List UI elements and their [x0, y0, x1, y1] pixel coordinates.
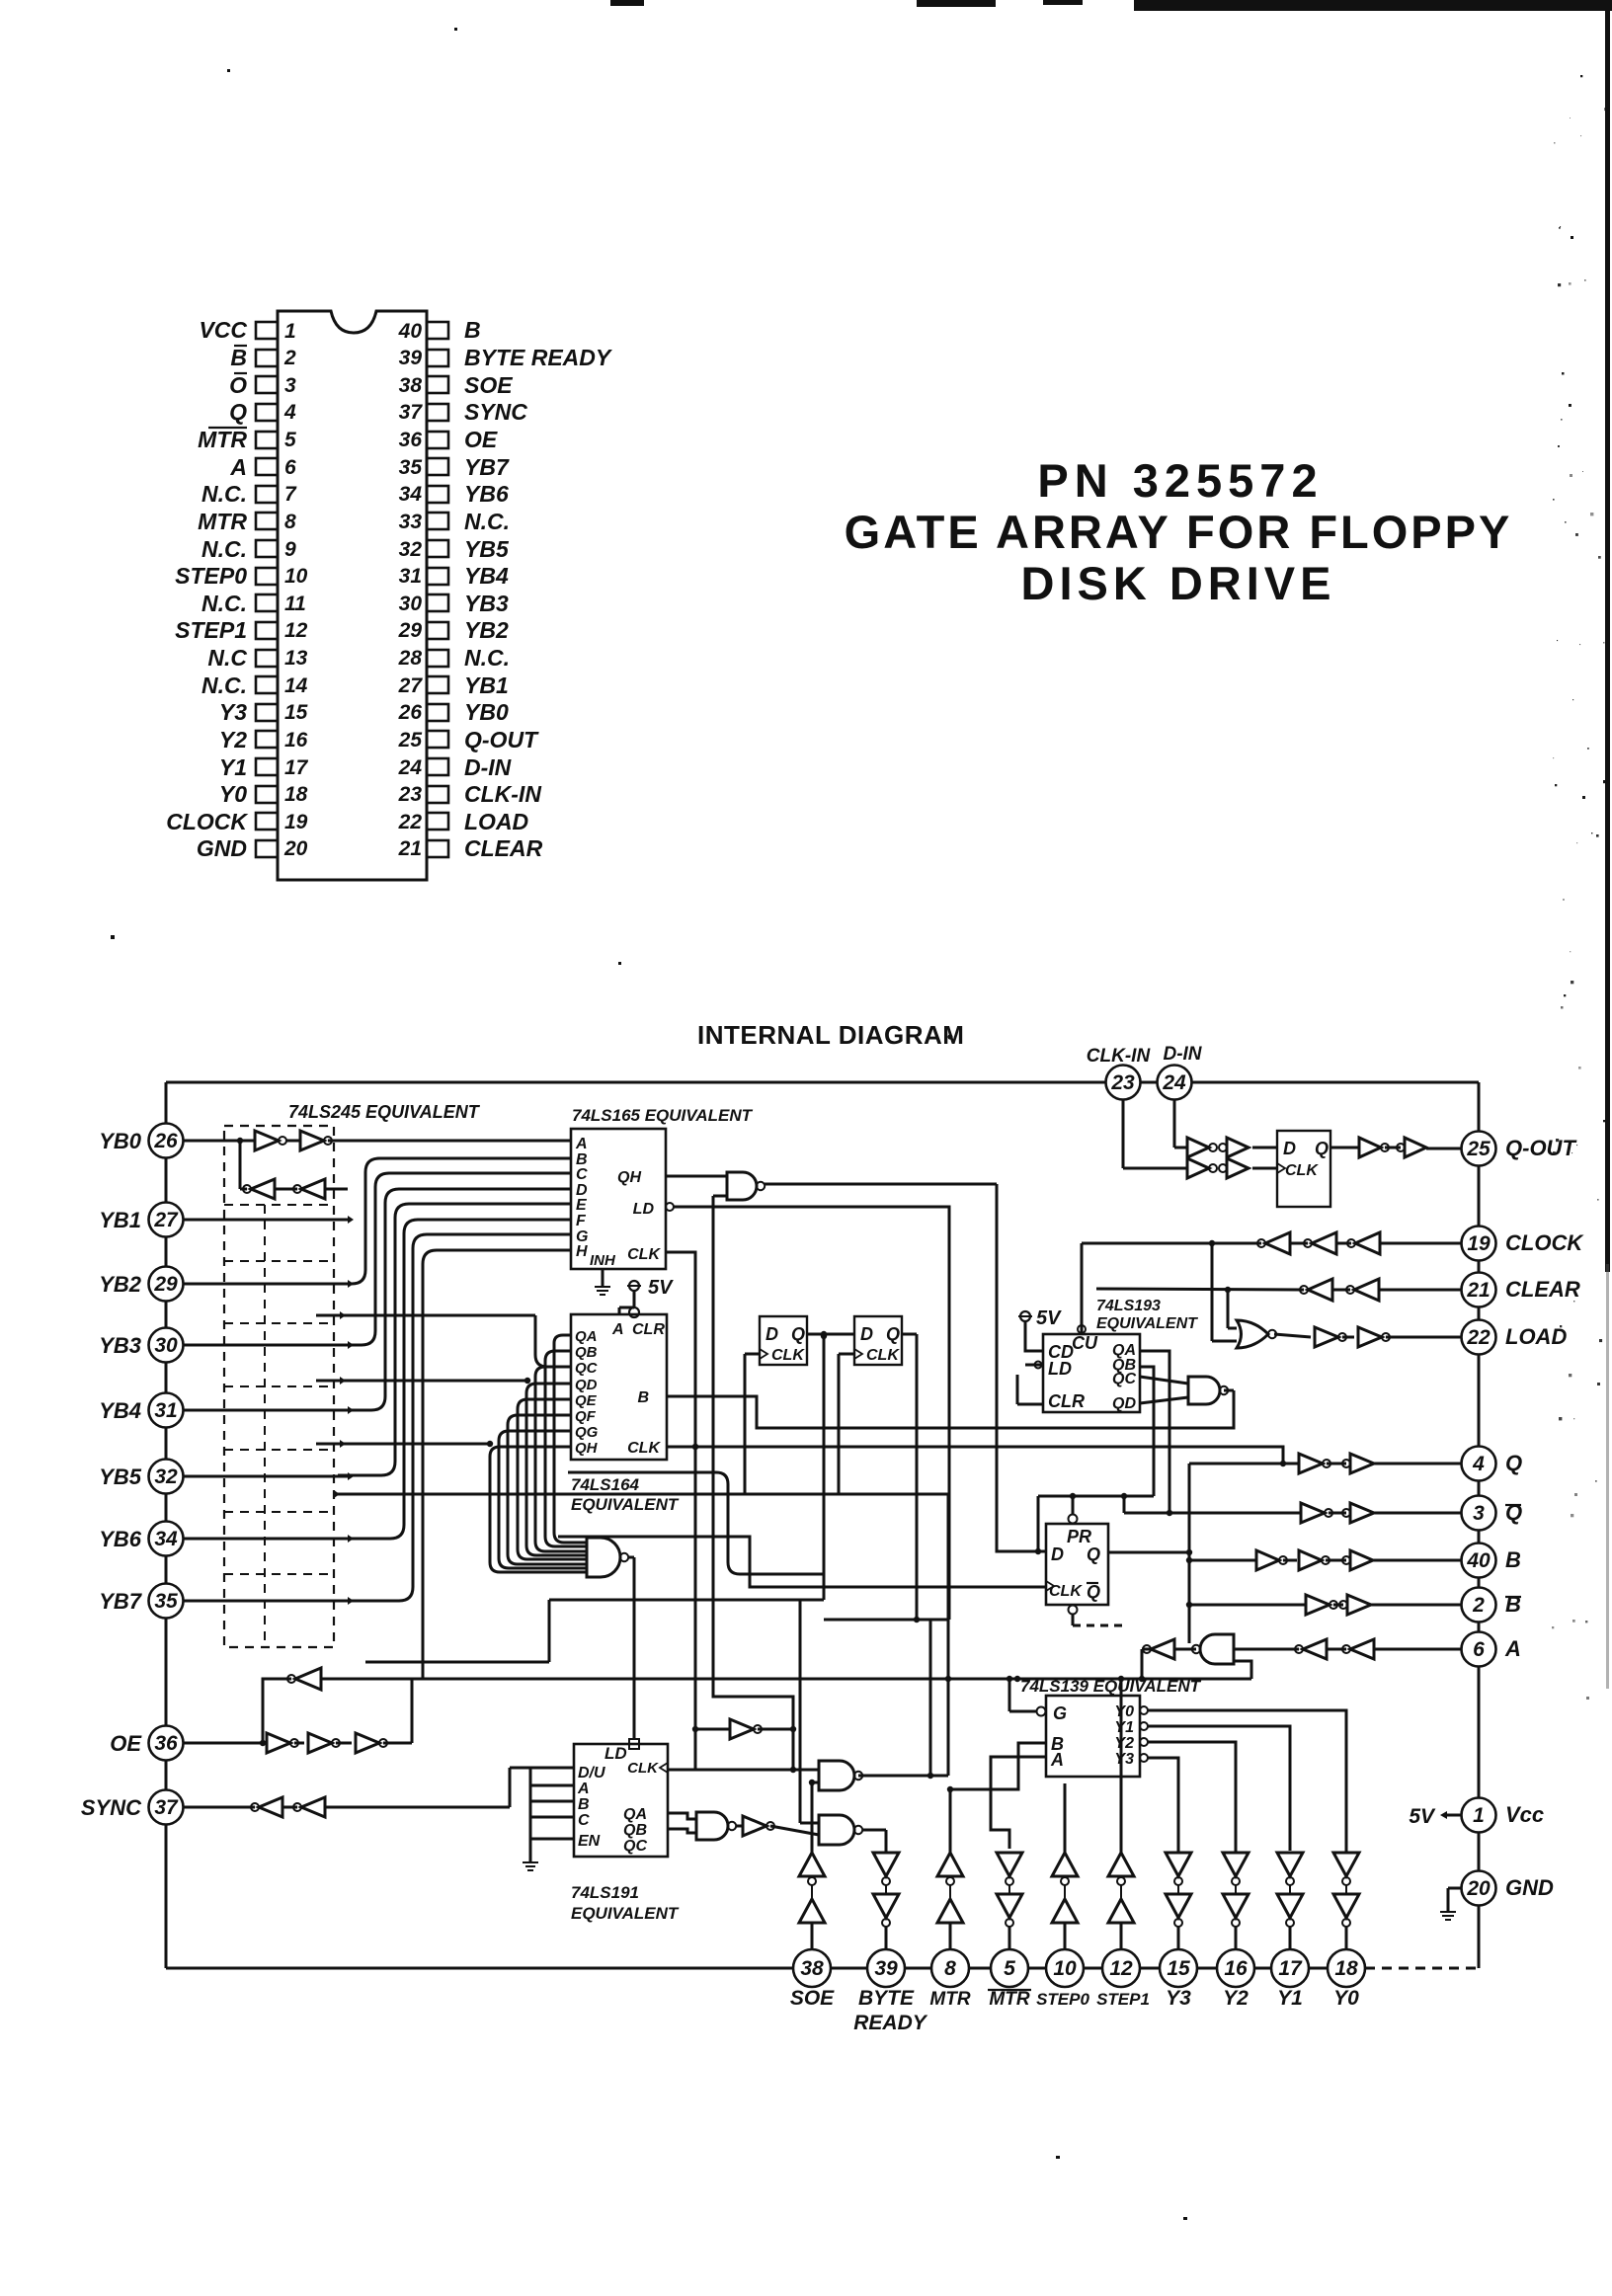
svg-text:N.C.: N.C. [464, 645, 510, 671]
svg-text:Y3: Y3 [1166, 1987, 1191, 2010]
svg-text:39: 39 [874, 1957, 898, 1980]
svg-text:Y1: Y1 [1277, 1987, 1303, 2010]
svg-text:E: E [576, 1197, 588, 1214]
svg-text:20: 20 [1466, 1877, 1491, 1900]
svg-text:CLR: CLR [1048, 1391, 1085, 1411]
svg-text:D/U: D/U [578, 1765, 605, 1781]
svg-text:B: B [1505, 1592, 1521, 1617]
svg-text:Y0: Y0 [219, 781, 247, 807]
svg-text:LD: LD [633, 1201, 655, 1218]
svg-text:QD: QD [1112, 1395, 1136, 1412]
svg-text:Y2: Y2 [1223, 1987, 1249, 2010]
svg-text:A: A [577, 1781, 590, 1797]
svg-text:CLK: CLK [1285, 1162, 1319, 1179]
svg-text:24: 24 [398, 756, 423, 779]
svg-text:N.C.: N.C. [201, 536, 247, 562]
svg-text:D: D [766, 1324, 778, 1344]
svg-text:QH: QH [617, 1169, 641, 1186]
svg-text:74LS193: 74LS193 [1096, 1298, 1161, 1314]
svg-text:Q-OUT: Q-OUT [1505, 1136, 1576, 1160]
svg-text:QA: QA [575, 1328, 598, 1345]
svg-text:15: 15 [284, 701, 308, 724]
svg-text:26: 26 [153, 1130, 178, 1152]
svg-text:Q: Q [1505, 1500, 1522, 1525]
svg-text:Vcc: Vcc [1505, 1802, 1544, 1827]
svg-text:N.C.: N.C. [201, 591, 247, 616]
svg-text:QE: QE [575, 1392, 598, 1409]
svg-text:CLK: CLK [771, 1347, 805, 1364]
svg-text:36: 36 [399, 429, 423, 451]
svg-text:GND: GND [1505, 1875, 1554, 1900]
svg-text:38: 38 [399, 374, 423, 397]
svg-text:36: 36 [154, 1732, 178, 1755]
svg-text:EQUIVALENT: EQUIVALENT [571, 1904, 680, 1923]
svg-text:6: 6 [284, 456, 296, 479]
svg-text:YB3: YB3 [464, 591, 509, 616]
svg-text:N.C.: N.C. [201, 481, 247, 507]
svg-text:13: 13 [284, 647, 308, 670]
svg-text:PN 325572: PN 325572 [1037, 454, 1323, 507]
svg-text:GATE ARRAY FOR FLOPPY: GATE ARRAY FOR FLOPPY [845, 506, 1513, 558]
svg-text:BYTE: BYTE [858, 1987, 915, 2010]
svg-text:B: B [578, 1796, 590, 1813]
svg-text:74LS139 EQUIVALENT: 74LS139 EQUIVALENT [1020, 1677, 1202, 1696]
svg-text:74LS191: 74LS191 [571, 1883, 639, 1902]
svg-text:34: 34 [399, 483, 423, 506]
svg-text:3: 3 [1473, 1502, 1485, 1525]
svg-text:EN: EN [578, 1833, 601, 1850]
svg-text:Q: Q [1505, 1451, 1522, 1475]
svg-text:1: 1 [284, 320, 296, 343]
svg-text:CLR: CLR [632, 1321, 665, 1338]
svg-text:CLK-IN: CLK-IN [464, 781, 541, 807]
svg-text:G: G [1053, 1703, 1067, 1723]
svg-text:5V: 5V [1409, 1805, 1436, 1828]
svg-text:5V: 5V [1036, 1307, 1062, 1329]
svg-text:Y3: Y3 [219, 699, 247, 725]
svg-text:8: 8 [944, 1957, 956, 1980]
svg-text:Y2: Y2 [1114, 1735, 1134, 1752]
svg-text:QC: QC [623, 1838, 647, 1855]
svg-text:A: A [1504, 1636, 1521, 1661]
svg-text:15: 15 [1167, 1957, 1190, 1980]
svg-text:22: 22 [1466, 1326, 1491, 1349]
svg-text:O: O [229, 372, 247, 398]
svg-text:A: A [611, 1321, 624, 1338]
svg-text:YB6: YB6 [464, 481, 509, 507]
svg-text:CLOCK: CLOCK [166, 809, 248, 834]
svg-text:H: H [576, 1243, 588, 1260]
svg-text:MTR: MTR [929, 1989, 970, 2010]
svg-text:YB1: YB1 [464, 673, 509, 698]
svg-text:8: 8 [284, 511, 296, 533]
svg-text:21: 21 [1466, 1279, 1490, 1302]
svg-text:19: 19 [1467, 1232, 1491, 1255]
svg-text:STEP0: STEP0 [1036, 1990, 1089, 2009]
svg-text:21: 21 [398, 837, 422, 860]
svg-text:Q: Q [1087, 1544, 1100, 1564]
svg-text:7: 7 [284, 483, 297, 506]
svg-text:MTR: MTR [198, 427, 247, 452]
svg-text:40: 40 [398, 320, 423, 343]
svg-text:18: 18 [1334, 1957, 1358, 1980]
svg-text:QA: QA [623, 1806, 647, 1823]
svg-text:YB7: YB7 [464, 454, 510, 480]
svg-text:27: 27 [398, 674, 424, 697]
svg-text:YB5: YB5 [99, 1465, 142, 1489]
svg-text:C: C [576, 1166, 588, 1183]
svg-text:27: 27 [153, 1209, 179, 1231]
svg-text:D: D [1283, 1139, 1296, 1158]
svg-text:STEP0: STEP0 [175, 563, 247, 589]
svg-text:D-IN: D-IN [1163, 1044, 1202, 1065]
svg-text:SYNC: SYNC [81, 1795, 142, 1820]
svg-text:39: 39 [399, 347, 423, 369]
svg-text:25: 25 [398, 729, 423, 752]
svg-text:74LS245 EQUIVALENT: 74LS245 EQUIVALENT [288, 1102, 481, 1122]
svg-text:Q-OUT: Q-OUT [464, 727, 539, 752]
svg-text:SOE: SOE [790, 1987, 835, 2010]
svg-text:QH: QH [575, 1440, 599, 1457]
svg-text:VCC: VCC [199, 317, 247, 343]
svg-text:Q: Q [229, 399, 247, 425]
svg-text:QB: QB [623, 1822, 647, 1839]
svg-text:EQUIVALENT: EQUIVALENT [1096, 1315, 1198, 1332]
svg-text:YB3: YB3 [99, 1333, 141, 1358]
svg-text:34: 34 [154, 1528, 178, 1550]
svg-text:STEP1: STEP1 [175, 617, 247, 643]
svg-text:Y3: Y3 [1114, 1751, 1134, 1768]
svg-text:31: 31 [399, 565, 422, 588]
svg-text:5: 5 [1004, 1957, 1015, 1980]
svg-text:Y1: Y1 [219, 754, 247, 780]
svg-text:QC: QC [1112, 1371, 1136, 1387]
svg-text:2: 2 [283, 347, 296, 369]
svg-text:CLOCK: CLOCK [1505, 1230, 1584, 1255]
svg-text:3: 3 [284, 374, 296, 397]
svg-text:6: 6 [1473, 1638, 1485, 1661]
svg-text:B: B [464, 317, 481, 343]
svg-text:16: 16 [284, 729, 308, 752]
svg-text:20: 20 [283, 837, 308, 860]
svg-text:35: 35 [154, 1590, 178, 1613]
svg-text:2: 2 [1472, 1594, 1485, 1617]
svg-text:SYNC: SYNC [464, 399, 527, 425]
svg-text:QF: QF [575, 1408, 597, 1425]
svg-text:OE: OE [464, 427, 498, 452]
svg-text:STEP1: STEP1 [1096, 1990, 1150, 2009]
svg-text:Q: Q [886, 1324, 900, 1344]
svg-text:25: 25 [1466, 1138, 1491, 1160]
svg-text:A: A [575, 1136, 588, 1152]
svg-text:C: C [578, 1812, 590, 1829]
svg-text:17: 17 [1278, 1957, 1303, 1980]
svg-text:24: 24 [1162, 1071, 1186, 1094]
svg-text:QG: QG [575, 1424, 599, 1441]
svg-text:BYTE READY: BYTE READY [464, 345, 613, 370]
svg-text:LOAD: LOAD [464, 809, 528, 834]
svg-text:F: F [576, 1213, 587, 1229]
svg-text:YB1: YB1 [99, 1208, 141, 1232]
svg-text:INTERNAL DIAGRAM: INTERNAL DIAGRAM [697, 1020, 964, 1050]
svg-text:30: 30 [399, 593, 423, 615]
svg-text:37: 37 [154, 1796, 179, 1819]
svg-text:40: 40 [1466, 1549, 1491, 1572]
svg-text:9: 9 [284, 538, 296, 561]
svg-text:16: 16 [1224, 1957, 1248, 1980]
svg-text:YB0: YB0 [464, 699, 509, 725]
svg-text:YB2: YB2 [99, 1272, 142, 1297]
svg-text:LD: LD [604, 1744, 627, 1763]
svg-text:4: 4 [283, 401, 296, 424]
svg-text:Y2: Y2 [219, 727, 247, 752]
svg-text:11: 11 [284, 593, 306, 615]
svg-text:YB4: YB4 [99, 1398, 141, 1423]
svg-text:QB: QB [575, 1344, 598, 1361]
svg-text:Q: Q [1087, 1582, 1100, 1602]
svg-text:CLEAR: CLEAR [1505, 1277, 1580, 1302]
svg-text:N.C: N.C [207, 645, 247, 671]
svg-text:10: 10 [1053, 1957, 1077, 1980]
svg-text:5V: 5V [648, 1277, 674, 1299]
svg-text:INH: INH [590, 1252, 616, 1269]
svg-text:29: 29 [398, 619, 423, 642]
svg-text:29: 29 [153, 1273, 178, 1296]
svg-text:B: B [637, 1389, 649, 1406]
svg-text:74LS164: 74LS164 [571, 1475, 640, 1494]
svg-text:PR: PR [1067, 1527, 1091, 1546]
svg-text:37: 37 [399, 401, 424, 424]
svg-text:GND: GND [197, 835, 247, 861]
svg-text:10: 10 [284, 565, 308, 588]
svg-text:N.C.: N.C. [201, 673, 247, 698]
svg-text:18: 18 [284, 783, 308, 806]
svg-text:N.C.: N.C. [464, 509, 510, 534]
svg-text:1: 1 [1473, 1804, 1485, 1827]
svg-text:A: A [229, 454, 247, 480]
svg-text:OE: OE [110, 1731, 142, 1756]
svg-text:Y0: Y0 [1114, 1703, 1134, 1720]
svg-text:LD: LD [1048, 1359, 1072, 1379]
svg-text:19: 19 [284, 811, 308, 833]
svg-text:SOE: SOE [464, 372, 513, 398]
svg-text:MTR: MTR [198, 509, 247, 534]
svg-text:Q: Q [791, 1324, 805, 1344]
svg-text:CLEAR: CLEAR [464, 835, 543, 861]
svg-text:LOAD: LOAD [1505, 1324, 1567, 1349]
svg-text:CLK-IN: CLK-IN [1087, 1046, 1152, 1067]
svg-text:Q: Q [1315, 1139, 1329, 1158]
svg-text:CU: CU [1072, 1333, 1098, 1353]
svg-text:4: 4 [1472, 1453, 1485, 1475]
svg-text:YB4: YB4 [464, 563, 509, 589]
svg-text:EQUIVALENT: EQUIVALENT [571, 1495, 680, 1514]
svg-text:YB5: YB5 [464, 536, 510, 562]
svg-text:YB0: YB0 [99, 1129, 142, 1153]
svg-text:12: 12 [284, 619, 308, 642]
svg-text:D-IN: D-IN [464, 754, 512, 780]
svg-text:17: 17 [284, 756, 309, 779]
svg-text:YB6: YB6 [99, 1527, 142, 1551]
svg-text:30: 30 [154, 1334, 178, 1357]
svg-text:B: B [230, 345, 247, 370]
svg-text:Y0: Y0 [1333, 1987, 1359, 2010]
svg-text:28: 28 [398, 647, 423, 670]
svg-text:33: 33 [399, 511, 423, 533]
svg-text:35: 35 [399, 456, 423, 479]
svg-text:23: 23 [1110, 1071, 1135, 1094]
svg-text:A: A [1050, 1750, 1064, 1770]
svg-text:CLK: CLK [627, 1246, 661, 1263]
svg-text:D: D [1051, 1544, 1064, 1564]
svg-text:26: 26 [398, 701, 423, 724]
svg-text:MTR: MTR [989, 1989, 1029, 2010]
svg-text:14: 14 [284, 674, 308, 697]
svg-text:31: 31 [154, 1399, 177, 1422]
svg-text:YB7: YB7 [99, 1589, 143, 1614]
svg-text:QD: QD [575, 1377, 598, 1393]
svg-text:38: 38 [800, 1957, 824, 1980]
svg-text:CLK: CLK [627, 1440, 661, 1457]
svg-text:5: 5 [284, 429, 296, 451]
svg-text:YB2: YB2 [464, 617, 509, 643]
svg-text:QC: QC [575, 1360, 599, 1377]
svg-text:CLK: CLK [627, 1760, 659, 1777]
svg-text:D: D [860, 1324, 873, 1344]
svg-text:32: 32 [399, 538, 423, 561]
svg-text:CLK: CLK [866, 1347, 900, 1364]
svg-text:22: 22 [398, 811, 423, 833]
svg-text:READY: READY [853, 2012, 928, 2034]
svg-text:Y1: Y1 [1114, 1719, 1134, 1736]
svg-text:DISK DRIVE: DISK DRIVE [1021, 557, 1336, 609]
svg-text:23: 23 [398, 783, 423, 806]
svg-text:12: 12 [1109, 1957, 1133, 1980]
svg-text:74LS165 EQUIVALENT: 74LS165 EQUIVALENT [572, 1106, 754, 1125]
svg-text:32: 32 [154, 1465, 178, 1488]
svg-text:B: B [1505, 1547, 1521, 1572]
